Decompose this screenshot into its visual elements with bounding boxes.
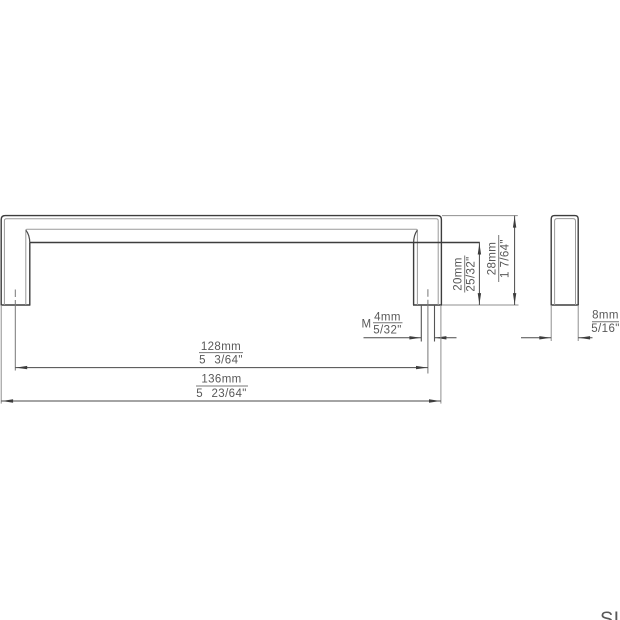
svg-text:5 23/64": 5 23/64" [196,388,247,400]
svg-text:128mm: 128mm [201,341,241,353]
svg-text:5/16": 5/16" [591,323,619,335]
svg-text:M: M [362,319,372,331]
svg-text:25/32": 25/32" [466,256,478,291]
svg-text:5 3/64": 5 3/64" [199,355,243,367]
svg-text:1 7/64": 1 7/64" [500,239,512,278]
svg-text:4mm: 4mm [374,312,401,324]
svg-text:28mm: 28mm [487,242,499,276]
svg-text:136mm: 136mm [201,374,241,386]
svg-text:SU: SU [600,609,620,620]
svg-text:5/32": 5/32" [373,325,401,337]
svg-text:8mm: 8mm [592,310,619,322]
svg-text:20mm: 20mm [453,257,465,291]
